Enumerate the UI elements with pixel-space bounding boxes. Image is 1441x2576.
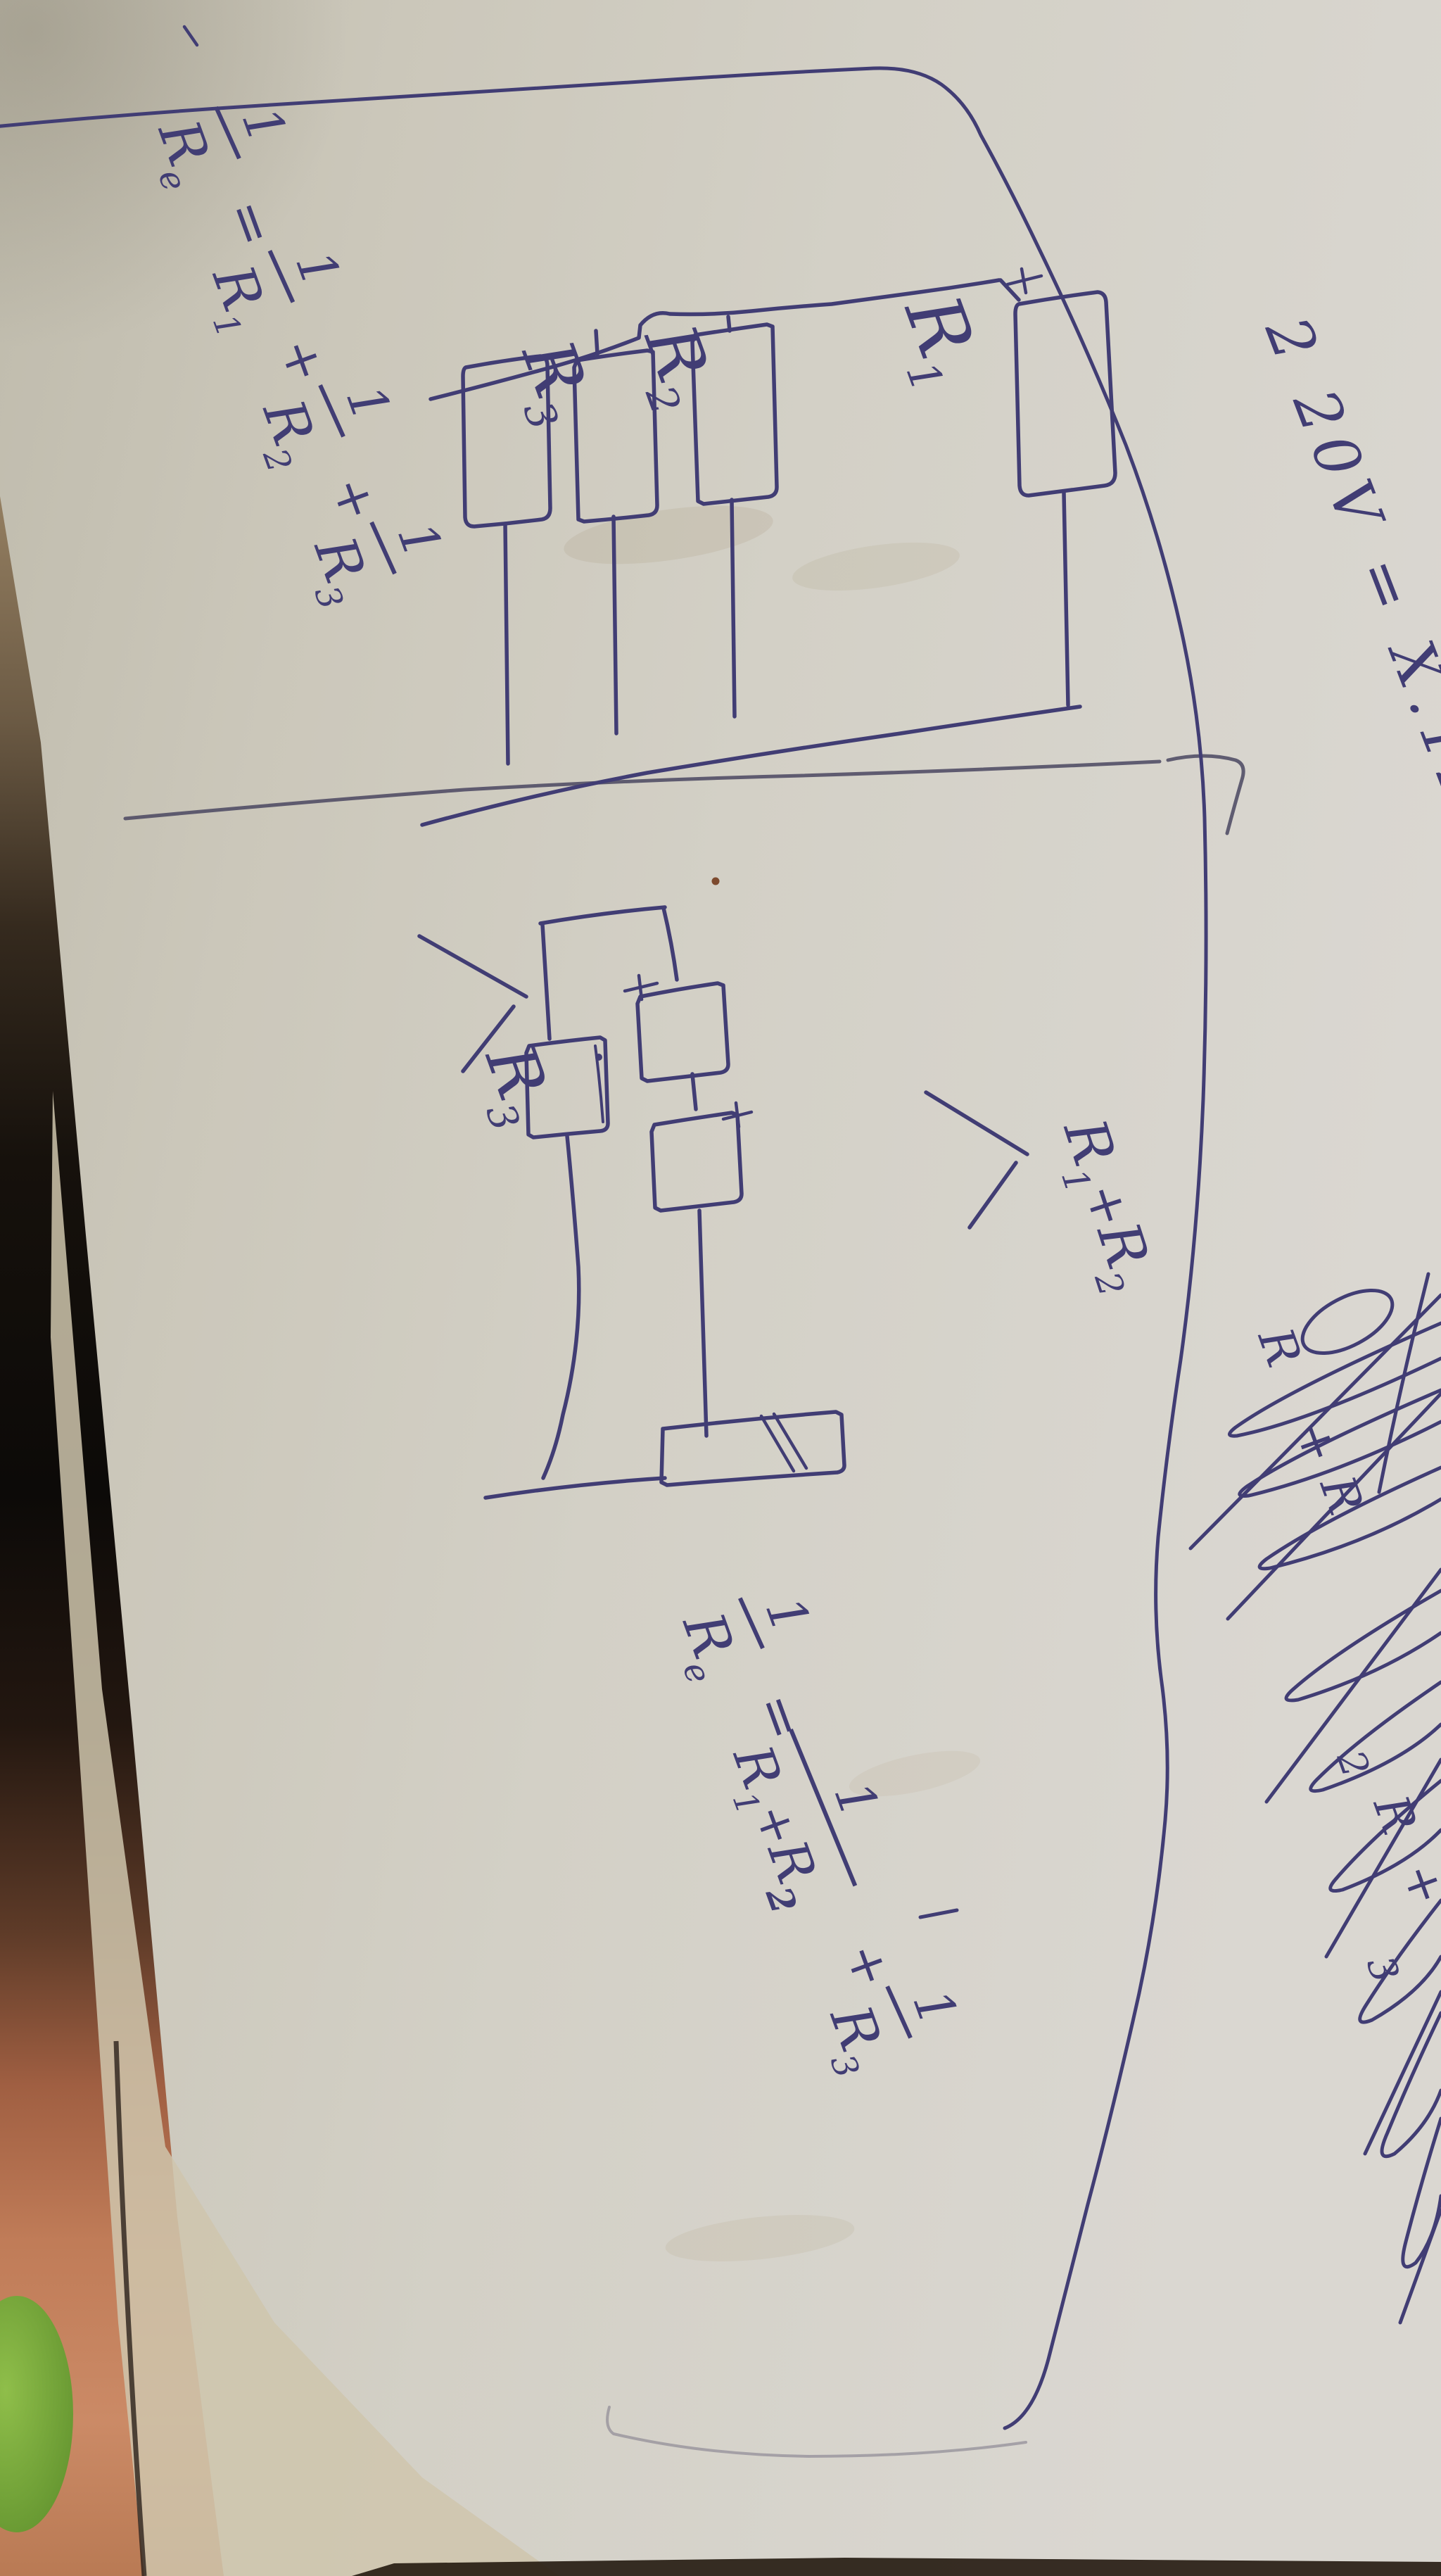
note-photo-canvas: 2 20V = X.1232.01 1 Re = 1 R1 + 1 R2 + 1… xyxy=(0,0,1441,2576)
corner-vignette xyxy=(0,0,633,633)
ink-dot xyxy=(595,1054,602,1061)
photo-of-handwritten-note: 2 20V = X.1232.01 1 Re = 1 R1 + 1 R2 + 1… xyxy=(0,0,1441,2576)
brown-speck xyxy=(712,878,720,885)
c1-stem-top-b2 xyxy=(596,331,597,354)
